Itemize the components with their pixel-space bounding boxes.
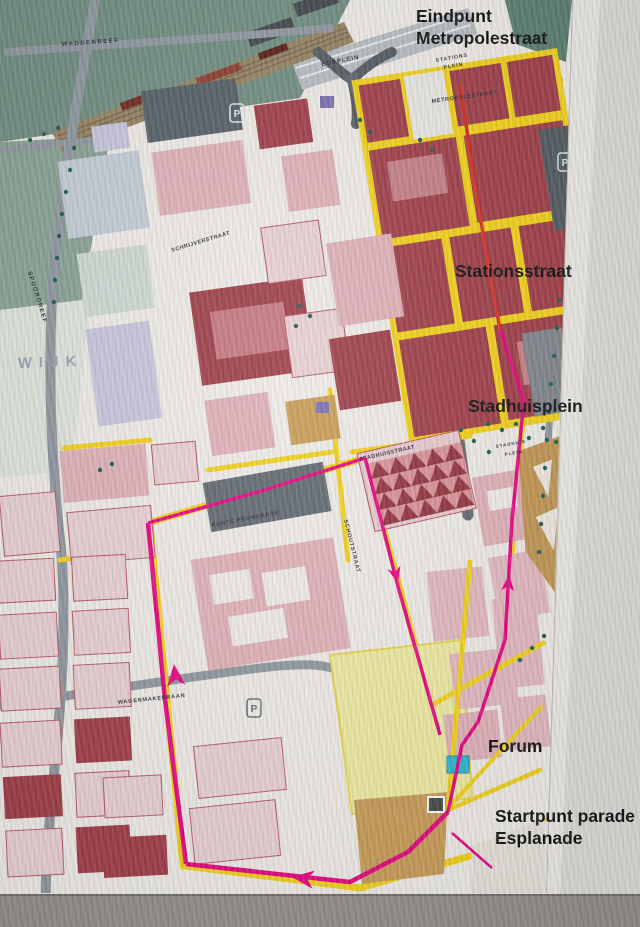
tree-dot: [28, 138, 32, 142]
tree-dot: [60, 212, 64, 216]
tree-dot: [527, 436, 531, 440]
city-block: [77, 244, 155, 317]
city-block: [3, 774, 63, 819]
city-block: [102, 835, 168, 878]
tree-dot: [53, 278, 57, 282]
city-block: [103, 775, 163, 818]
city-block: [326, 233, 404, 326]
city-block: [0, 612, 59, 659]
tree-dot: [558, 298, 562, 302]
tree-dot: [56, 126, 60, 130]
tree-dot: [541, 426, 545, 430]
tree-dot: [472, 439, 476, 443]
tree-dot: [55, 256, 59, 260]
market-stage: [428, 797, 444, 812]
city-block: [285, 395, 341, 446]
parade-route-map: PPP WADDENREEFBUSPLEINSTATIONSPLEINMETRO…: [0, 0, 640, 927]
city-block: [210, 302, 290, 360]
utility-block: [316, 402, 329, 413]
tree-dot: [430, 148, 434, 152]
tree-dot: [518, 658, 522, 662]
city-block: [0, 720, 62, 767]
city-block: [151, 441, 198, 485]
desk-strip: [0, 896, 640, 927]
tree-dot: [418, 138, 422, 142]
courtyard: [262, 566, 311, 606]
tree-dot: [52, 300, 56, 304]
page-edge-shadow: [0, 894, 640, 896]
city-block: [281, 149, 340, 212]
city-block: [492, 595, 545, 689]
city-block: [261, 220, 326, 284]
tree-dot: [42, 132, 46, 136]
city-block: [0, 666, 61, 711]
city-block: [72, 608, 130, 655]
tree-dot: [530, 646, 534, 650]
city-block: [71, 554, 127, 601]
tree-dot: [57, 234, 61, 238]
tree-dot: [541, 494, 545, 498]
city-blocks-promenade: [191, 537, 351, 670]
tree-dot: [537, 550, 541, 554]
tree-dot: [549, 382, 553, 386]
city-block: [399, 327, 501, 438]
tree-dot: [64, 190, 68, 194]
tree-dot: [110, 462, 114, 466]
annotation-forum: Forum: [488, 736, 542, 756]
tree-dot: [487, 450, 491, 454]
tree-dot: [486, 422, 490, 426]
tree-dot: [555, 326, 559, 330]
tree-dot: [98, 468, 102, 472]
tree-dot: [308, 314, 312, 318]
city-block: [58, 150, 150, 239]
city-block: [85, 321, 162, 427]
annotation-stadhuisplein: Stadhuisplein: [468, 396, 583, 416]
tree-dot: [514, 422, 518, 426]
city-block: [254, 98, 314, 149]
city-block: [358, 79, 409, 143]
tree-dot: [543, 466, 547, 470]
city-block: [194, 738, 287, 799]
city-block: [0, 558, 56, 603]
city-block: [151, 140, 251, 216]
tree-dot: [542, 634, 546, 638]
annotation-stationsstraat: Stationsstraat: [455, 261, 572, 281]
city-block: [6, 828, 64, 877]
tree-dot: [500, 428, 504, 432]
city-block: [91, 122, 130, 153]
tree-dot: [459, 428, 463, 432]
parking-icon-glyph: P: [251, 704, 258, 715]
tree-dot: [545, 438, 549, 442]
city-block: [204, 392, 275, 456]
city-block: [426, 566, 489, 641]
city-block: [329, 330, 401, 411]
tree-dot: [298, 304, 302, 308]
city-block: [74, 716, 132, 763]
map-content: PPP WADDENREEFBUSPLEINSTATIONSPLEINMETRO…: [0, 0, 615, 893]
tree-dot: [72, 146, 76, 150]
parking-icon-glyph: P: [234, 109, 241, 120]
photo-of-map: PPP WADDENREEFBUSPLEINSTATIONSPLEINMETRO…: [0, 0, 640, 927]
tree-dot: [358, 118, 362, 122]
utility-block: [320, 96, 334, 108]
tree-dot: [552, 354, 556, 358]
city-block: [60, 444, 150, 503]
tree-dot: [68, 168, 72, 172]
city-block: [0, 492, 60, 557]
courtyard: [209, 569, 253, 605]
street-label: WIJK: [18, 353, 84, 372]
tree-dot: [294, 324, 298, 328]
tree-dot: [554, 440, 558, 444]
city-block: [189, 800, 280, 865]
tree-dot: [368, 130, 372, 134]
city-block: [507, 55, 561, 118]
tree-dot: [539, 522, 543, 526]
